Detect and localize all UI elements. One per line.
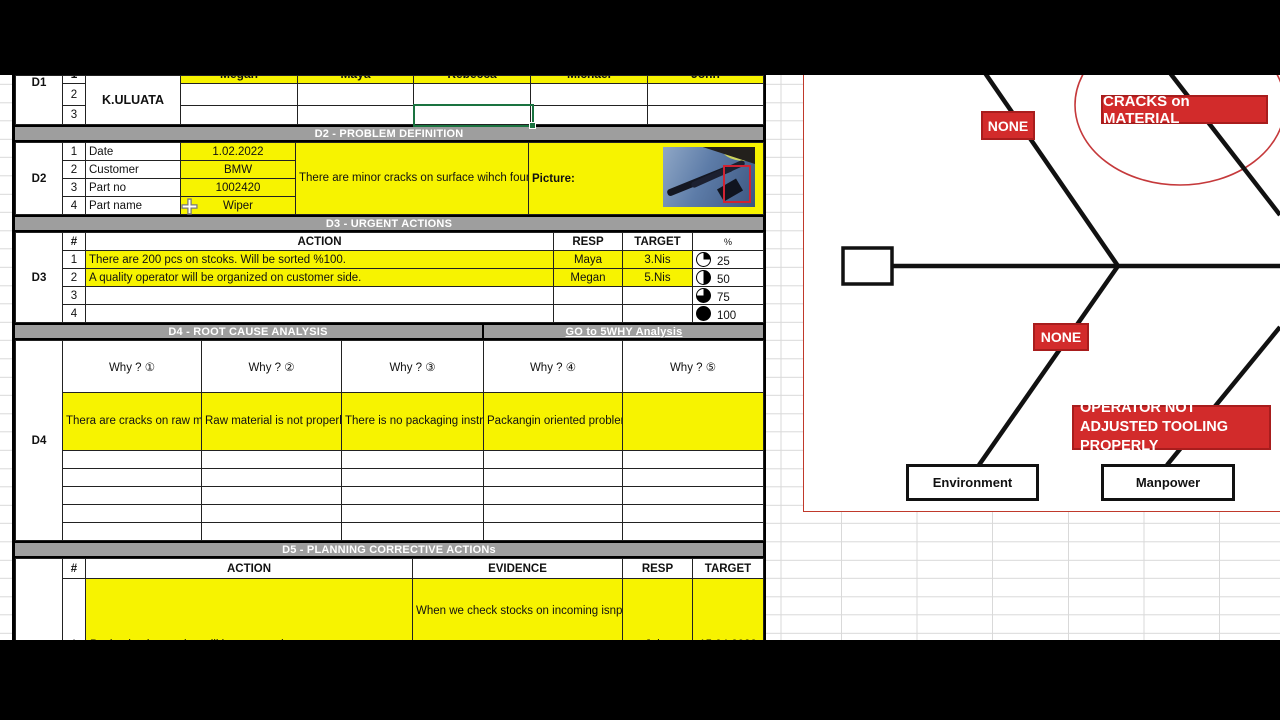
empty-cell[interactable] (484, 505, 623, 523)
d5-label-cell (16, 559, 63, 641)
d3-pct-cell[interactable]: 50 (693, 269, 764, 287)
grid-left-strip (0, 75, 12, 640)
d3-target-cell[interactable]: 3.Nis (623, 251, 693, 269)
d3-target-cell[interactable]: 5.Nis (623, 269, 693, 287)
empty-cell[interactable] (181, 84, 298, 106)
d2-label: D2 (16, 143, 63, 215)
d2-band: D2 - PROBLEM DEFINITION (15, 125, 763, 142)
cause-label-none-top[interactable]: NONE (981, 111, 1035, 140)
empty-cell[interactable] (484, 451, 623, 469)
empty-cell[interactable] (623, 523, 764, 541)
d3-resp-cell[interactable] (554, 287, 623, 305)
d3-action-cell[interactable]: There are 200 pcs on stcoks. Will be sor… (86, 251, 554, 269)
d2-field-name[interactable]: Part name (86, 197, 181, 215)
d2-row-num[interactable]: 2 (63, 161, 86, 179)
empty-cell[interactable] (63, 523, 202, 541)
d3-resp-cell[interactable] (554, 305, 623, 323)
d3-col-action: ACTION (86, 233, 554, 251)
d3-col-pct: % (693, 233, 764, 251)
cause-label-none-bottom[interactable]: NONE (1033, 323, 1089, 351)
d5-row-num[interactable]: 1 (63, 579, 86, 641)
d3-target-cell[interactable] (623, 287, 693, 305)
d2-problem-description[interactable]: There are minor cracks on surface wihch … (296, 143, 529, 215)
d1-row2-num[interactable]: 2 (63, 84, 86, 106)
empty-cell[interactable] (202, 469, 342, 487)
empty-cell[interactable] (342, 523, 484, 541)
d4-label: D4 (16, 341, 63, 541)
why2-header: Why ? ② (202, 341, 342, 393)
empty-cell[interactable] (531, 84, 648, 106)
pie-75-icon (696, 288, 711, 303)
d5-col-resp: RESP (623, 559, 693, 579)
empty-cell[interactable] (623, 469, 764, 487)
d3-col-num: # (63, 233, 86, 251)
d5-band: D5 - PLANNING CORRECTIVE ACTIONs (15, 541, 763, 558)
excel-cross-cursor-icon (181, 198, 198, 215)
d1-name-cell[interactable]: John (648, 76, 764, 84)
d3-row-num[interactable]: 1 (63, 251, 86, 269)
d4-section: D4 Why ? ① Why ? ② Why ? ③ Why ? ④ Why ?… (15, 340, 764, 541)
empty-cell[interactable] (202, 505, 342, 523)
empty-cell[interactable] (648, 84, 764, 106)
d2-field-name[interactable]: Part no (86, 179, 181, 197)
d3-row-num[interactable]: 2 (63, 269, 86, 287)
d5-col-evidence: EVIDENCE (413, 559, 623, 579)
d3-resp-cell[interactable]: Megan (554, 269, 623, 287)
empty-cell[interactable] (623, 451, 764, 469)
d1-name-cell[interactable]: Rebecca (414, 76, 531, 84)
d2-row-num[interactable]: 1 (63, 143, 86, 161)
pie-25-icon (696, 252, 711, 267)
empty-cell[interactable] (298, 106, 414, 125)
empty-cell[interactable] (342, 451, 484, 469)
empty-cell[interactable] (63, 451, 202, 469)
8d-report-table: D1 1 K.ULUATA Megan Maya Rebecca Michael… (12, 75, 766, 640)
d3-target-cell[interactable] (623, 305, 693, 323)
empty-cell[interactable] (484, 469, 623, 487)
pie-100-icon (696, 306, 711, 321)
empty-cell[interactable] (63, 505, 202, 523)
d5-resp-cell[interactable]: John (623, 579, 693, 641)
d4-band-title: D4 - ROOT CAUSE ANALYSIS (14, 325, 482, 338)
empty-cell[interactable] (623, 487, 764, 505)
d1-name-cell[interactable]: Megan (181, 76, 298, 84)
d3-action-cell[interactable] (86, 305, 554, 323)
go-to-5why-link[interactable]: GO to 5WHY Analysis (482, 325, 764, 338)
category-box-manpower[interactable]: Manpower (1101, 464, 1235, 501)
d5-section: # ACTION EVIDENCE RESP TARGET 1 Packagin… (15, 558, 764, 640)
defect-photo[interactable] (663, 147, 755, 207)
why4-header: Why ? ④ (484, 341, 623, 393)
d5-col-num: # (63, 559, 86, 579)
empty-cell[interactable] (342, 505, 484, 523)
empty-cell[interactable] (181, 106, 298, 125)
d3-col-target: TARGET (623, 233, 693, 251)
d1-name-cell[interactable]: Maya (298, 76, 414, 84)
d3-pct-cell[interactable]: 75 (693, 287, 764, 305)
active-cell-selection[interactable] (413, 104, 534, 127)
d2-field-name[interactable]: Customer (86, 161, 181, 179)
d3-action-cell[interactable]: A quality operator will be organized on … (86, 269, 554, 287)
d3-label: D3 (16, 233, 63, 323)
d1-name-cell[interactable]: Michael (531, 76, 648, 84)
empty-cell[interactable] (342, 487, 484, 505)
d3-section: D3 # ACTION RESP TARGET % 1 There are 20… (15, 232, 764, 323)
d2-field-name[interactable]: Date (86, 143, 181, 161)
d5-target-cell[interactable]: 15.04.2022 (693, 579, 764, 641)
why3-header: Why ? ③ (342, 341, 484, 393)
d1-label: D1 (16, 76, 63, 125)
cause-label-operator[interactable]: OPERATOR NOT ADJUSTED TOOLING PROPERLY (1072, 405, 1271, 450)
picture-label: Picture: (532, 173, 575, 185)
d1-row1-num[interactable]: 1 (63, 76, 86, 84)
d1-row3-num[interactable]: 3 (63, 106, 86, 125)
empty-cell[interactable] (298, 84, 414, 106)
pie-50-icon (696, 270, 711, 285)
empty-cell[interactable] (202, 487, 342, 505)
photo-defect-highlight (723, 165, 751, 203)
d2-row-num[interactable]: 3 (63, 179, 86, 197)
d3-row-num[interactable]: 3 (63, 287, 86, 305)
screen: D1 1 K.ULUATA Megan Maya Rebecca Michael… (0, 0, 1280, 720)
empty-cell[interactable] (484, 487, 623, 505)
d4-band: D4 - ROOT CAUSE ANALYSIS GO to 5WHY Anal… (15, 323, 763, 340)
d5-action-cell[interactable]: Packaging instruction will be prepared (86, 579, 413, 641)
d1-team-cell[interactable]: K.ULUATA (86, 76, 181, 125)
why2-answer[interactable]: Raw material is not properly handled dur… (202, 393, 342, 451)
d3-pct-cell[interactable]: 25 (693, 251, 764, 269)
empty-cell[interactable] (202, 451, 342, 469)
d3-action-cell[interactable] (86, 287, 554, 305)
d3-resp-cell[interactable]: Maya (554, 251, 623, 269)
d5-evidence-cell[interactable]: When we check stocks on incoming isnpeci… (413, 579, 623, 641)
empty-cell[interactable] (414, 84, 531, 106)
d3-row-num[interactable]: 4 (63, 305, 86, 323)
why4-answer[interactable]: Packangin oriented problem is not forese… (484, 393, 623, 451)
d2-row-num[interactable]: 4 (63, 197, 86, 215)
empty-cell[interactable] (202, 523, 342, 541)
d2-section: D2 1 Date 1.02.2022 There are minor crac… (15, 142, 764, 215)
d2-customer-value[interactable]: BMW (181, 161, 296, 179)
category-box-environment[interactable]: Environment (906, 464, 1039, 501)
d2-partno-value[interactable]: 1002420 (181, 179, 296, 197)
d3-band: D3 - URGENT ACTIONS (15, 215, 763, 232)
d3-col-resp: RESP (554, 233, 623, 251)
empty-cell[interactable] (342, 469, 484, 487)
problem-label[interactable]: CRACKS on MATERIAL (1101, 95, 1268, 124)
empty-cell[interactable] (63, 487, 202, 505)
spreadsheet-viewport: D1 1 K.ULUATA Megan Maya Rebecca Michael… (0, 75, 1280, 640)
empty-cell[interactable] (623, 505, 764, 523)
d5-col-target: TARGET (693, 559, 764, 579)
why5-header: Why ? ⑤ (623, 341, 764, 393)
empty-cell[interactable] (648, 106, 764, 125)
d5-col-action: ACTION (86, 559, 413, 579)
d2-date-value[interactable]: 1.02.2022 (181, 143, 296, 161)
why1-header: Why ? ① (63, 341, 202, 393)
d1-section: D1 1 K.ULUATA Megan Maya Rebecca Michael… (15, 75, 764, 125)
empty-cell[interactable] (484, 523, 623, 541)
why5-answer[interactable] (623, 393, 764, 451)
empty-cell[interactable] (63, 469, 202, 487)
why3-answer[interactable]: There is no packaging instruction. (342, 393, 484, 451)
why1-answer[interactable]: Thera are cracks on raw material. (63, 393, 202, 451)
empty-cell[interactable] (531, 106, 648, 125)
d2-picture-cell[interactable]: Picture: (529, 143, 764, 215)
d3-pct-cell[interactable]: 100 (693, 305, 764, 323)
